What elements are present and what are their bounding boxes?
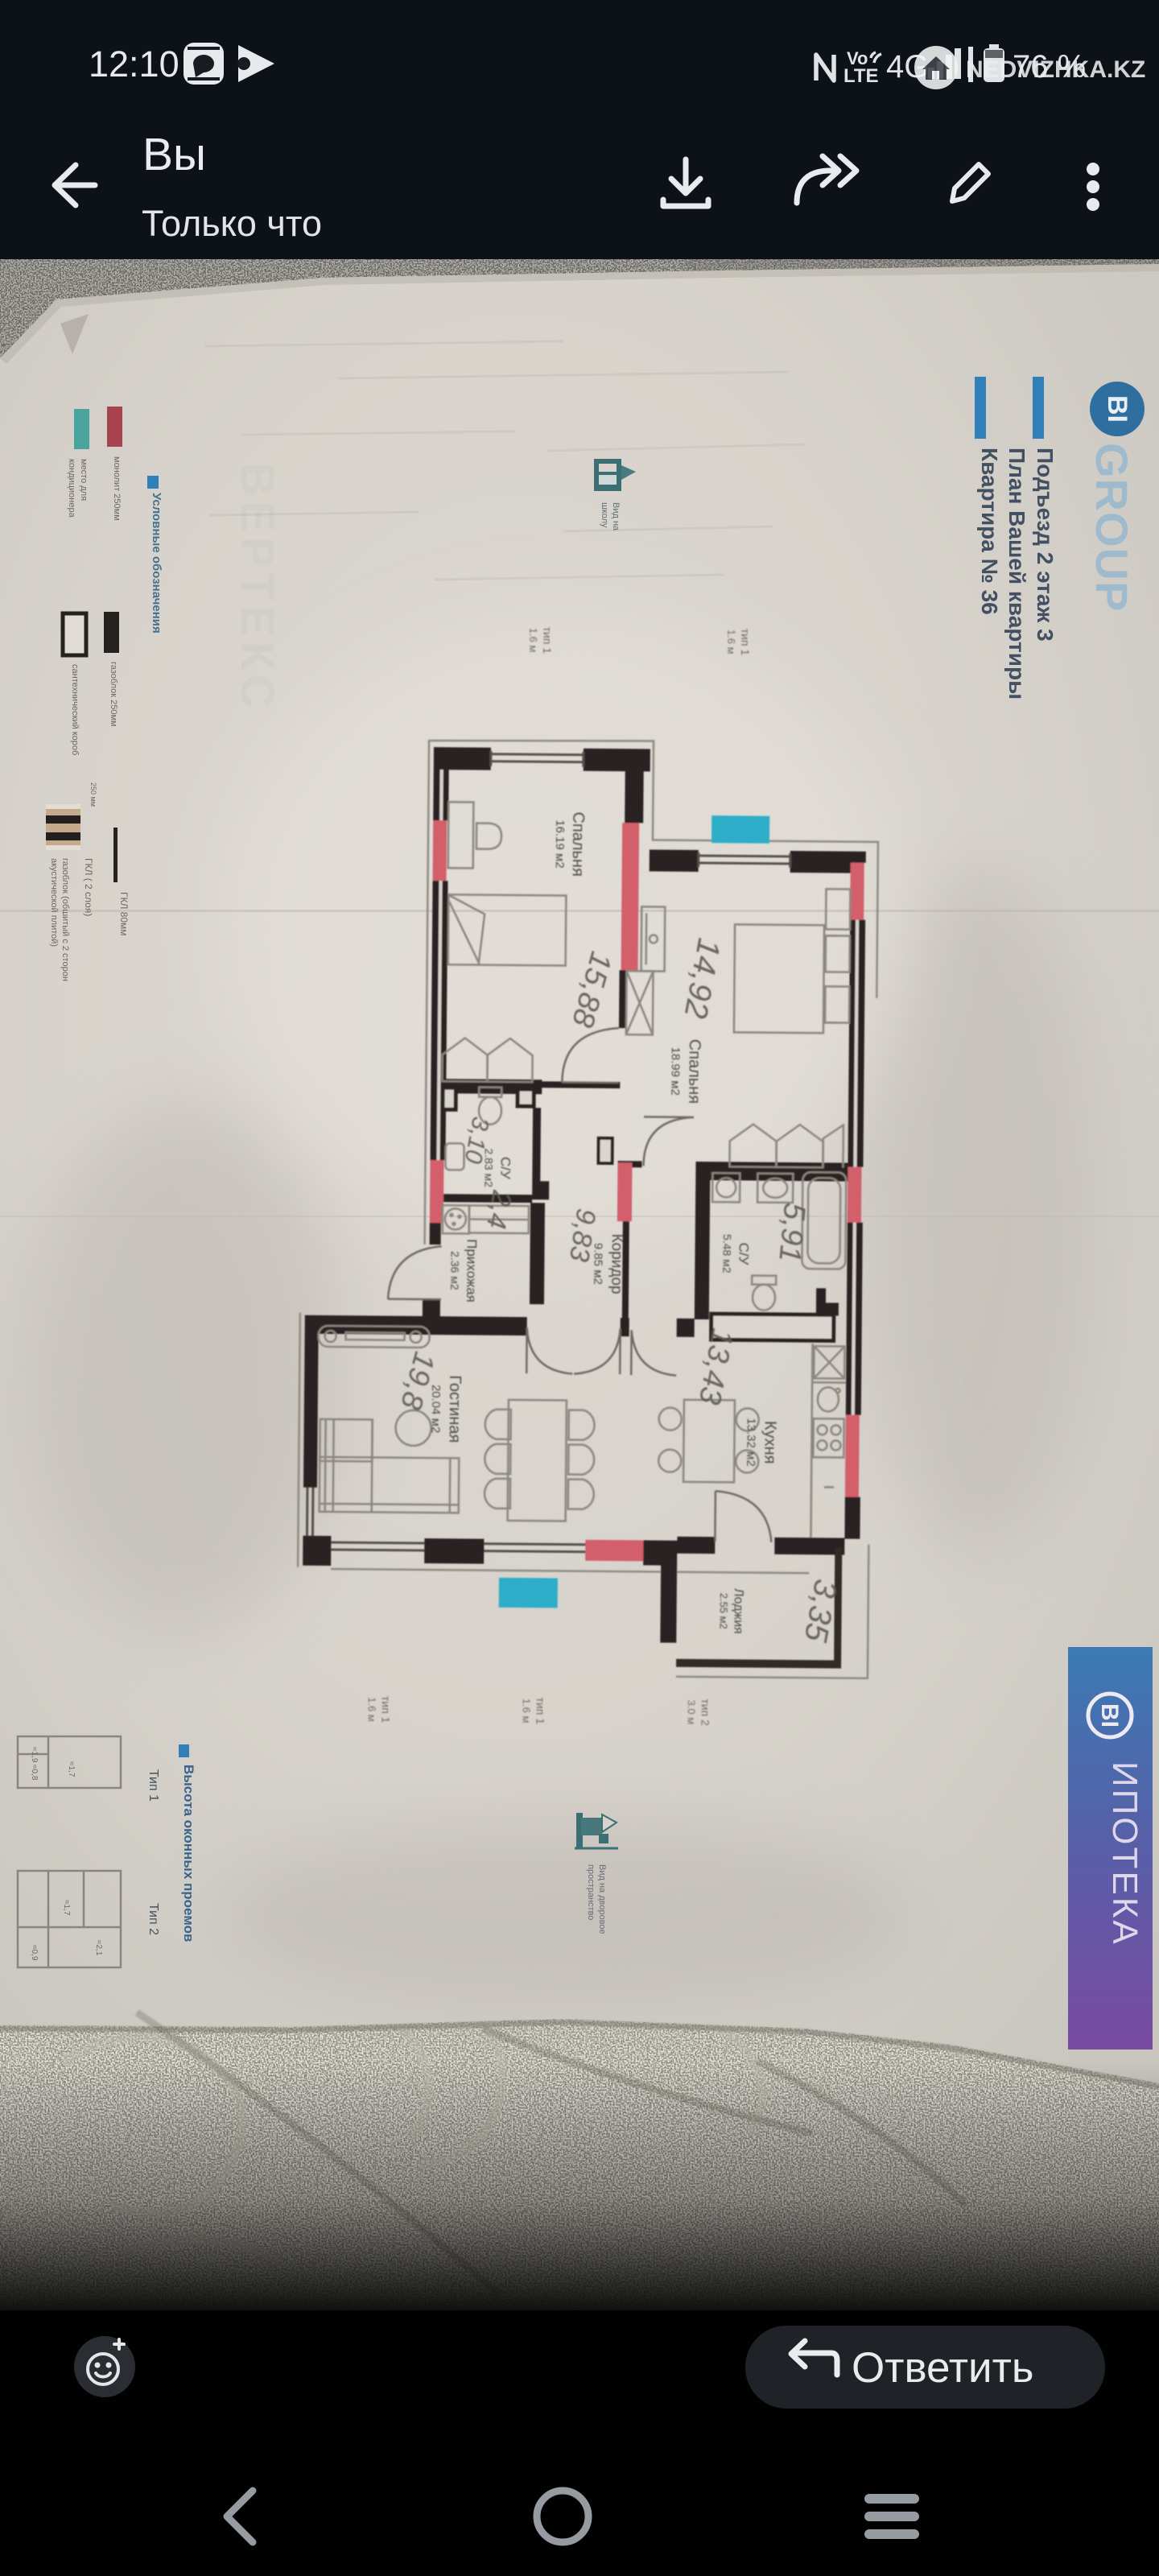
svg-text:кондиционера: кондиционера xyxy=(67,459,76,518)
svg-text:Тип 2: Тип 2 xyxy=(146,1903,160,1935)
svg-text:Вы: Вы xyxy=(142,129,206,180)
svg-text:тип 1: тип 1 xyxy=(379,1696,392,1724)
svg-text:тип 2: тип 2 xyxy=(699,1699,711,1726)
svg-text:ГКЛ ( 2 слоя): ГКЛ ( 2 слоя) xyxy=(83,858,94,916)
svg-text:Вид на дворовое: Вид на дворовое xyxy=(597,1864,607,1934)
svg-text:тип 1: тип 1 xyxy=(739,629,752,656)
svg-text:Спальня: Спальня xyxy=(685,1039,703,1104)
svg-text:1.6 м: 1.6 м xyxy=(725,630,737,654)
svg-text:План Вашей квартиры: План Вашей квартиры xyxy=(1004,448,1029,700)
svg-text:Ответить: Ответить xyxy=(852,2344,1034,2392)
svg-text:С/У: С/У xyxy=(736,1242,751,1265)
svg-text:2.36 м2: 2.36 м2 xyxy=(448,1251,461,1290)
svg-text:школу: школу xyxy=(600,502,609,528)
svg-text:NEDVIZHKA.KZ: NEDVIZHKA.KZ xyxy=(966,56,1145,83)
svg-text:тип 1: тип 1 xyxy=(541,626,554,654)
svg-text:Тип 1: Тип 1 xyxy=(146,1769,160,1802)
svg-text:С/У: С/У xyxy=(497,1157,513,1179)
svg-text:13.32 м2: 13.32 м2 xyxy=(744,1418,758,1467)
svg-text:≈1,9: ≈1,9 xyxy=(30,1747,39,1763)
svg-text:250 мм: 250 мм xyxy=(89,782,97,807)
svg-text:≈1,7: ≈1,7 xyxy=(67,1761,76,1777)
svg-text:5.48 м2: 5.48 м2 xyxy=(720,1234,733,1274)
svg-text:1.6 м: 1.6 м xyxy=(527,628,539,653)
svg-text:Гостиная: Гостиная xyxy=(445,1375,464,1443)
svg-text:12:10: 12:10 xyxy=(89,43,179,85)
svg-text:пространство: пространство xyxy=(586,1864,596,1920)
svg-text:16.19 м2: 16.19 м2 xyxy=(553,819,567,869)
svg-text:≈0,8: ≈0,8 xyxy=(30,1765,39,1781)
svg-text:Прихожая: Прихожая xyxy=(464,1239,480,1302)
svg-text:Подъезд 2 этаж 3: Подъезд 2 этаж 3 xyxy=(1033,448,1058,642)
svg-text:Только что: Только что xyxy=(142,203,322,244)
svg-text:ГКЛ 80мм: ГКЛ 80мм xyxy=(118,892,130,936)
svg-text:Условные обозначения: Условные обозначения xyxy=(150,493,163,634)
svg-text:BI: BI xyxy=(1096,1703,1123,1728)
svg-text:акустической плитой): акустической плитой) xyxy=(49,858,59,947)
svg-text:LTE: LTE xyxy=(843,65,879,87)
svg-text:Спальня: Спальня xyxy=(569,811,588,877)
svg-text:GROUP: GROUP xyxy=(1087,443,1137,612)
svg-text:2.55 м2: 2.55 м2 xyxy=(717,1593,729,1629)
svg-text:Кухня: Кухня xyxy=(761,1421,778,1464)
svg-text:≈1,7: ≈1,7 xyxy=(62,1900,71,1916)
svg-text:5,91: 5,91 xyxy=(772,1201,811,1264)
svg-text:монолит 250мм: монолит 250мм xyxy=(112,456,122,521)
svg-text:BI: BI xyxy=(1102,395,1132,423)
svg-text:1.6 м: 1.6 м xyxy=(365,1697,377,1722)
svg-text:18.99 м2: 18.99 м2 xyxy=(668,1046,683,1096)
svg-text:Вид на: Вид на xyxy=(611,502,621,531)
svg-text:Лоджия: Лоджия xyxy=(731,1588,744,1634)
svg-text:место для: место для xyxy=(79,459,89,501)
svg-text:Коридор: Коридор xyxy=(608,1233,625,1294)
svg-text:тип 1: тип 1 xyxy=(534,1697,547,1724)
svg-text:Квартира № 36: Квартира № 36 xyxy=(977,448,1002,615)
svg-text:газоблок (обшитый с 2 сторон: газоблок (обшитый с 2 сторон xyxy=(60,858,70,981)
svg-text:газоблок 250мм: газоблок 250мм xyxy=(109,662,118,727)
svg-text:≈0,9: ≈0,9 xyxy=(30,1945,39,1961)
svg-text:≈2,1: ≈2,1 xyxy=(94,1940,103,1956)
svg-text:1.6 м: 1.6 м xyxy=(520,1699,532,1724)
svg-text:ИПОТЕКА: ИПОТЕКА xyxy=(1105,1761,1145,1946)
svg-text:ВЕРТЕКС: ВЕРТЕКС xyxy=(231,462,283,712)
svg-text:сантехнический короб: сантехнический короб xyxy=(70,664,80,755)
svg-text:3.0 м: 3.0 м xyxy=(685,1700,697,1725)
svg-text:Высота оконных проемов: Высота оконных проемов xyxy=(181,1765,196,1942)
